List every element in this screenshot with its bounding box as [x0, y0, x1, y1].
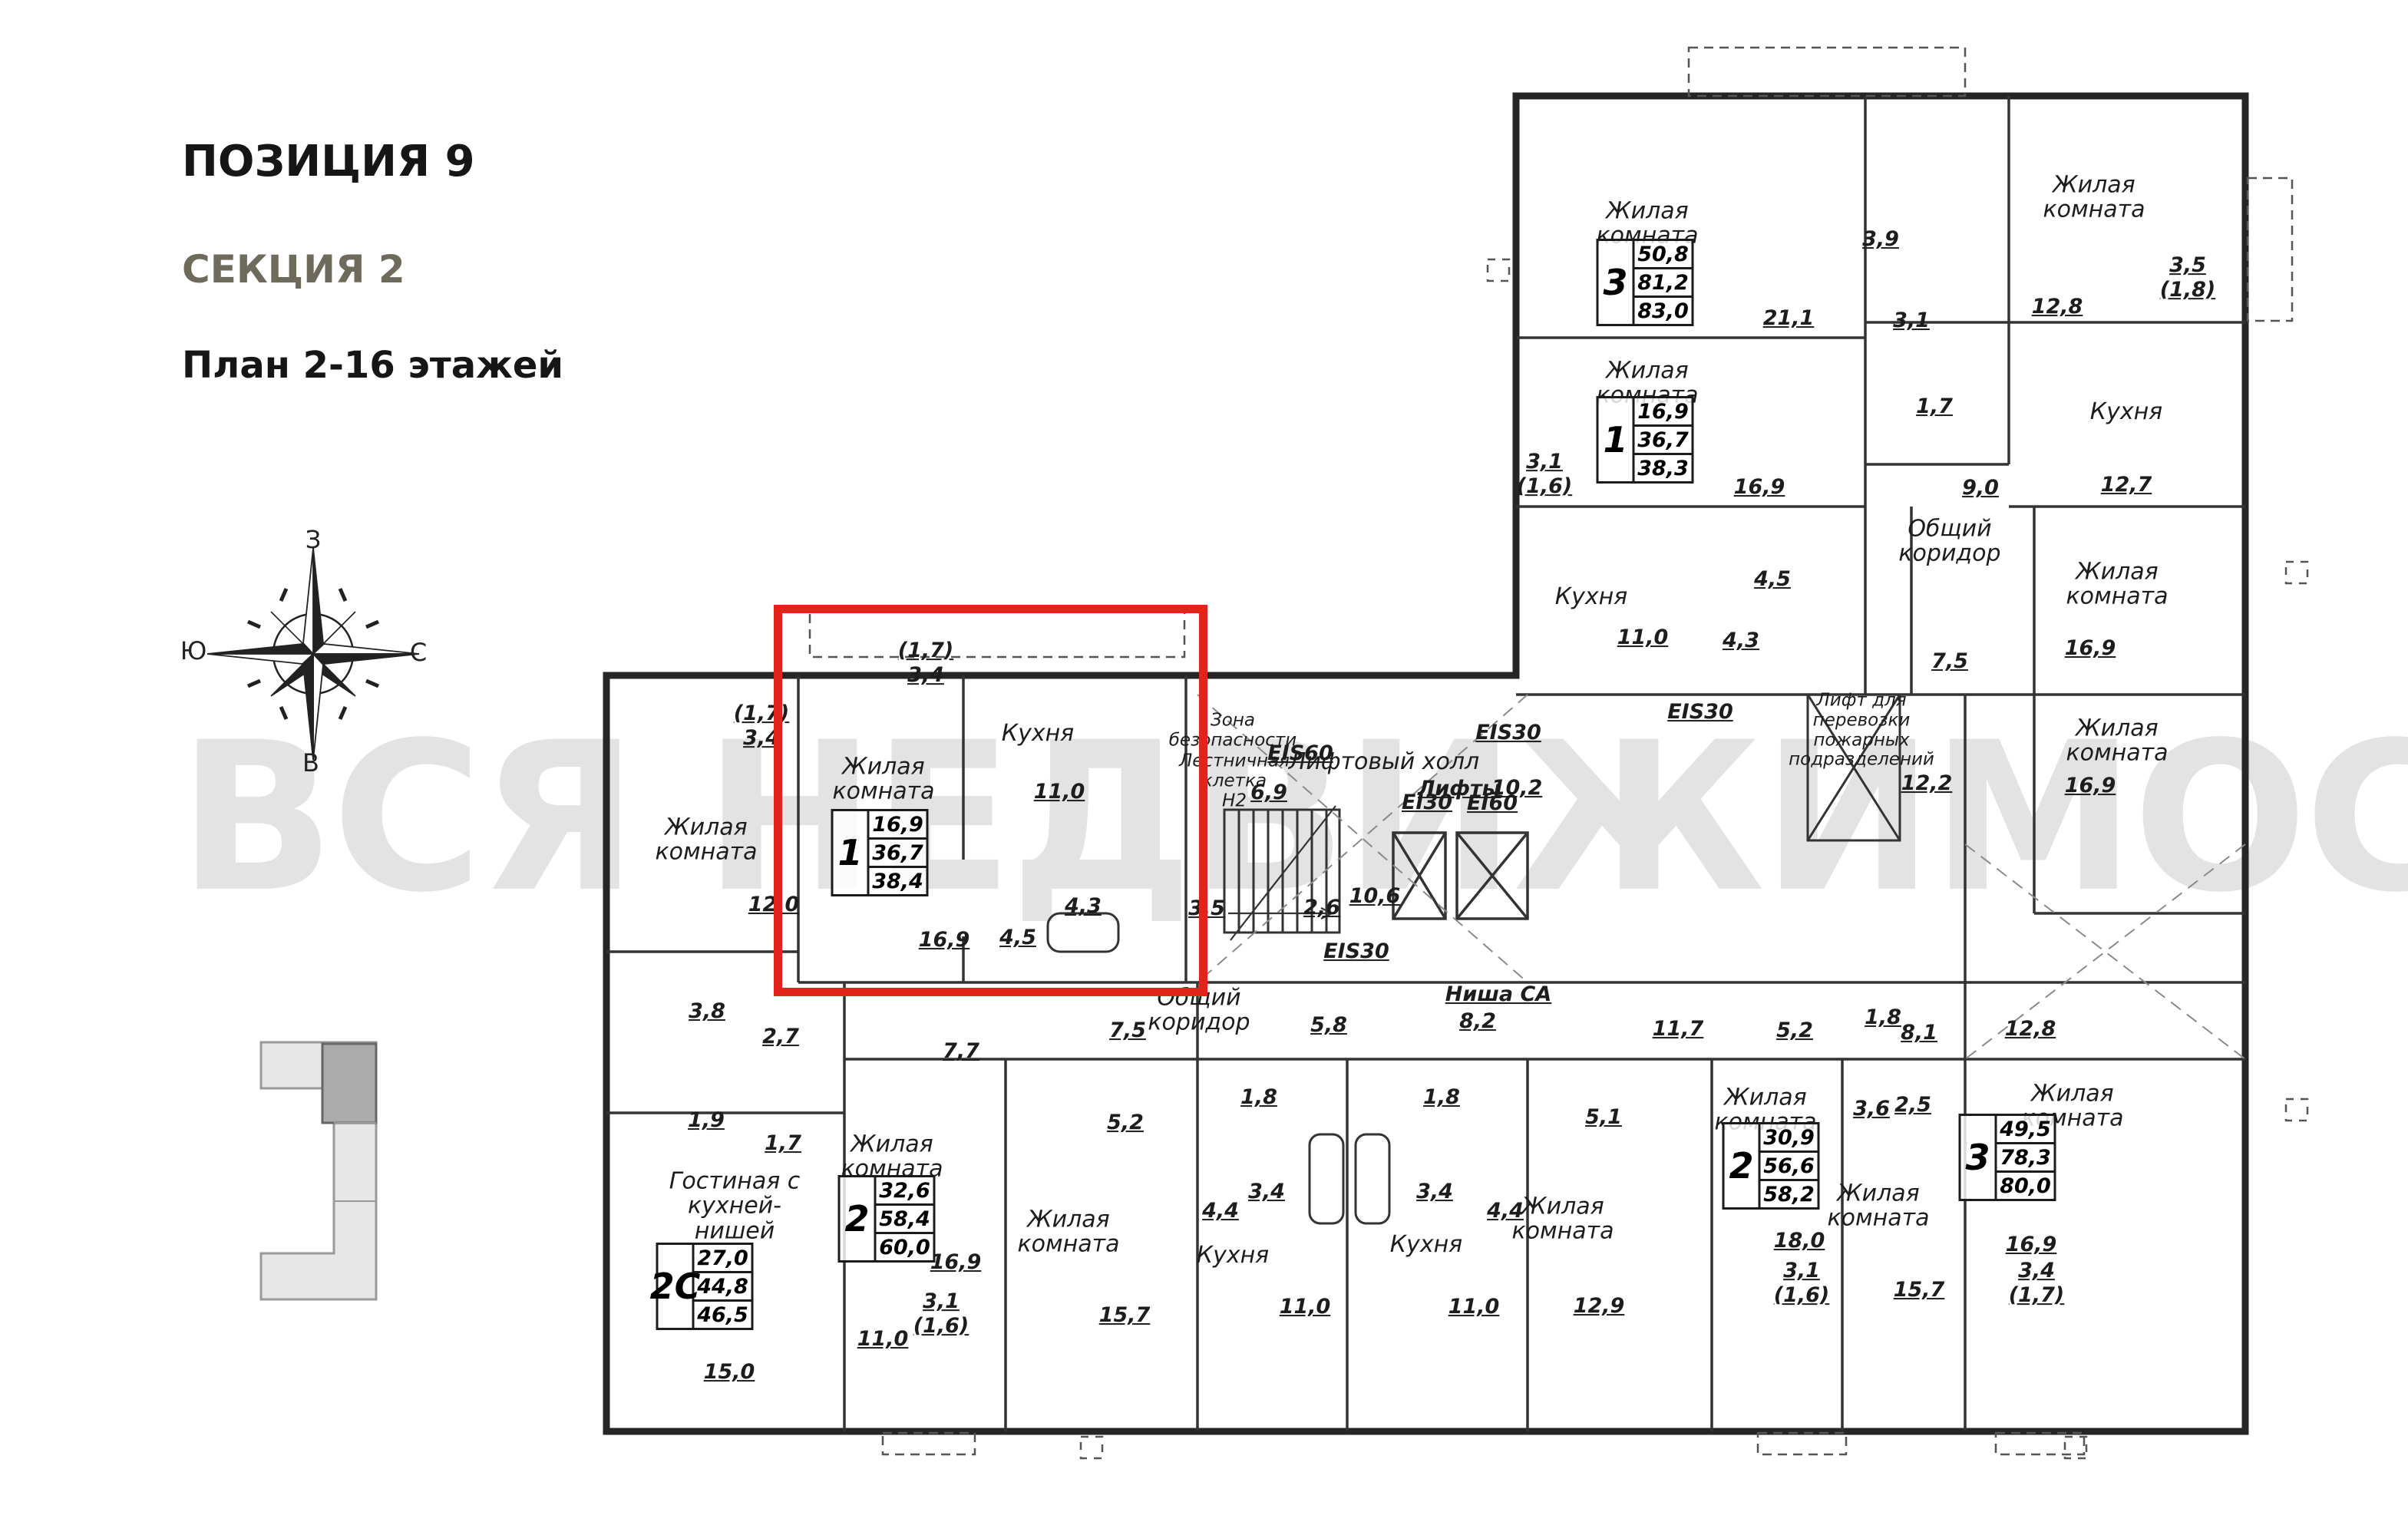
dimension-label: 16,9	[2006, 1233, 2057, 1257]
apartment-area-value: 44,8	[695, 1273, 751, 1302]
dimension-label: 6,9	[1250, 781, 1287, 805]
dimension-label: 15,7	[1099, 1303, 1151, 1328]
apartment-rooms-count: 2С	[659, 1245, 695, 1328]
dimension-label: EI60	[1467, 791, 1518, 816]
dimension-label: 2,5	[1894, 1093, 1931, 1117]
dimension-label: 1,9	[688, 1108, 725, 1133]
room-label: Жилая комната	[1512, 1195, 1614, 1245]
zone-label: Лифт для перевозки пожарных подразделени…	[1789, 692, 1934, 771]
room-label: Жилая комната	[1828, 1182, 1930, 1232]
apartment-area-value: 58,4	[877, 1206, 933, 1234]
dimension-label: 4,4	[1487, 1199, 1524, 1223]
apartment-area-value: 58,2	[1761, 1181, 1818, 1207]
dimension-label: EI30	[1402, 791, 1452, 815]
apartment-rooms-count: 2	[841, 1177, 877, 1260]
dimension-label: 2,7	[762, 1025, 799, 1049]
dimension-label: 5,1	[1585, 1105, 1622, 1130]
room-label: Общий коридор	[1898, 517, 2000, 567]
dimension-label: 3,4	[1248, 1180, 1285, 1204]
compass-icon	[183, 523, 444, 784]
dimension-label: 15,7	[1894, 1278, 1945, 1302]
apartment-area-value: 83,0	[1635, 298, 1692, 324]
apartment-stats-table: 2С27,044,846,5	[656, 1243, 754, 1330]
dimension-label: 11,0	[1448, 1295, 1500, 1319]
dimension-label: 7,7	[943, 1039, 979, 1064]
dimension-label: 5,2	[1107, 1111, 1144, 1135]
room-label: Жилая комната	[2066, 560, 2169, 610]
apartment-area-value: 32,6	[877, 1177, 933, 1206]
dimension-label: 7,5	[1931, 649, 1968, 674]
room-label: Жилая комната	[656, 816, 758, 866]
dimension-label: EIS60	[1267, 741, 1333, 766]
room-label: Гостиная с кухней- нишей	[669, 1169, 801, 1243]
dimension-label: 12,7	[2101, 473, 2152, 497]
apartment-stats-table: 230,956,658,2	[1723, 1122, 1820, 1210]
apartment-stats-table: 350,881,283,0	[1597, 239, 1694, 326]
apartment-area-value: 27,0	[695, 1245, 751, 1273]
dimension-label: 1,8	[1423, 1085, 1460, 1110]
apartment-area-value: 78,3	[1997, 1144, 2054, 1173]
dimension-label: 5,2	[1776, 1018, 1813, 1043]
dimension-label: 11,7	[1653, 1017, 1704, 1041]
apartment-area-value: 50,8	[1635, 241, 1692, 269]
dimension-label: 12,8	[2032, 295, 2083, 319]
dimension-label: 9,0	[1962, 476, 1999, 500]
apartment-area-value: 60,0	[877, 1234, 933, 1260]
page: ПОЗИЦИЯ 9 СЕКЦИЯ 2 План 2-16 этажей ВСЯ …	[0, 0, 2408, 1535]
compass-west-label: З	[306, 525, 322, 554]
apartment-stats-table: 116,936,738,3	[1597, 396, 1694, 484]
dimension-label: 4,3	[1723, 629, 1759, 653]
footprint-current-section	[322, 1044, 376, 1123]
apartment-area-value: 49,5	[1997, 1116, 2054, 1144]
dimension-label: 8,1	[1901, 1021, 1937, 1045]
dimension-label: 16,9	[1734, 475, 1785, 500]
dimension-label: EIS30	[1323, 939, 1389, 964]
room-label: Жилая комната	[2066, 717, 2169, 767]
dimension-label: 12,9	[1574, 1294, 1625, 1319]
dimension-label: 18,0	[1774, 1229, 1825, 1253]
dimension-label: 8,2	[1459, 1009, 1496, 1034]
apartment-area-value: 56,6	[1761, 1153, 1818, 1181]
dimension-label: 3,1 (1,6)	[913, 1289, 969, 1339]
dimension-label: 12,2	[1901, 771, 1953, 796]
apartment-area-value: 38,3	[1635, 455, 1692, 481]
apartment-rooms-count: 1	[1599, 398, 1635, 481]
dimension-label: 5,8	[1310, 1013, 1347, 1038]
dimension-label: 1,8	[1865, 1005, 1901, 1030]
dimension-label: 1,8	[1240, 1085, 1277, 1110]
apartment-area-value: 80,0	[1997, 1173, 2054, 1199]
apartment-rooms-count: 3	[1599, 241, 1635, 324]
apartment-stats-table: 232,658,460,0	[838, 1175, 936, 1263]
dimension-label: 11,0	[1617, 626, 1669, 650]
dimension-label: 3,5 (1,8)	[2160, 253, 2216, 302]
dimension-label: 16,9	[2065, 774, 2116, 798]
dimension-label: 15,0	[704, 1360, 755, 1385]
room-label: Кухня	[1555, 585, 1627, 609]
dimension-label: 1,7	[1916, 394, 1953, 419]
dimension-label: 10,6	[1349, 884, 1401, 909]
room-label: Жилая комната	[1018, 1208, 1120, 1258]
dimension-label: 21,1	[1763, 306, 1815, 331]
dimension-label: 16,9	[930, 1250, 982, 1275]
dimension-label: EIS30	[1475, 721, 1541, 745]
dimension-label: 7,5	[1109, 1018, 1146, 1043]
dimension-label: 3,6	[1853, 1097, 1890, 1121]
dimension-label: EIS30	[1667, 700, 1733, 725]
dimension-label: 3,4	[1416, 1180, 1453, 1204]
apartment-rooms-count: 2	[1725, 1124, 1761, 1207]
apartment-area-value: 36,7	[1635, 427, 1692, 455]
compass-south-label: Ю	[180, 636, 207, 665]
room-label: Жилая комната	[2043, 173, 2145, 223]
dimension-label: 3,1 (1,6)	[1774, 1259, 1830, 1308]
apartment-stats-table: 349,578,380,0	[1959, 1114, 2056, 1201]
apartment-area-value: 30,9	[1761, 1124, 1818, 1153]
apartment-area-value: 46,5	[695, 1302, 751, 1328]
dimension-label: 3,8	[689, 999, 725, 1024]
apartment-rooms-count: 3	[1961, 1116, 1997, 1199]
dimension-label: 3,1 (1,6)	[1517, 450, 1573, 499]
apartment-area-value: 16,9	[1635, 398, 1692, 427]
dimension-label: 11,0	[1280, 1295, 1331, 1319]
dimension-label: 4,5	[1754, 567, 1791, 592]
compass-east-label: В	[302, 748, 319, 777]
dimension-label: Ниша СА	[1445, 982, 1552, 1007]
apartment-area-value: 81,2	[1635, 269, 1692, 298]
compass-north-label: С	[410, 638, 427, 667]
building-footprint	[246, 1028, 399, 1320]
room-label: Кухня	[2090, 400, 2162, 424]
dimension-label: 3,9	[1862, 227, 1899, 252]
room-label: Кухня	[1390, 1233, 1462, 1257]
dimension-label: 3,4 (1,7)	[2009, 1259, 2065, 1308]
dimension-label: 2,6	[1303, 896, 1340, 920]
highlighted-apartment-box[interactable]	[774, 605, 1207, 996]
dimension-label: 16,9	[2065, 636, 2116, 661]
dimension-label: 4,4	[1202, 1199, 1239, 1223]
dimension-label: 1,7	[765, 1131, 801, 1156]
room-label: Кухня	[1197, 1243, 1269, 1268]
dimension-label: 12,8	[2005, 1017, 2056, 1041]
dimension-label: 11,0	[857, 1327, 909, 1352]
dimension-label: 3,1	[1893, 309, 1930, 333]
